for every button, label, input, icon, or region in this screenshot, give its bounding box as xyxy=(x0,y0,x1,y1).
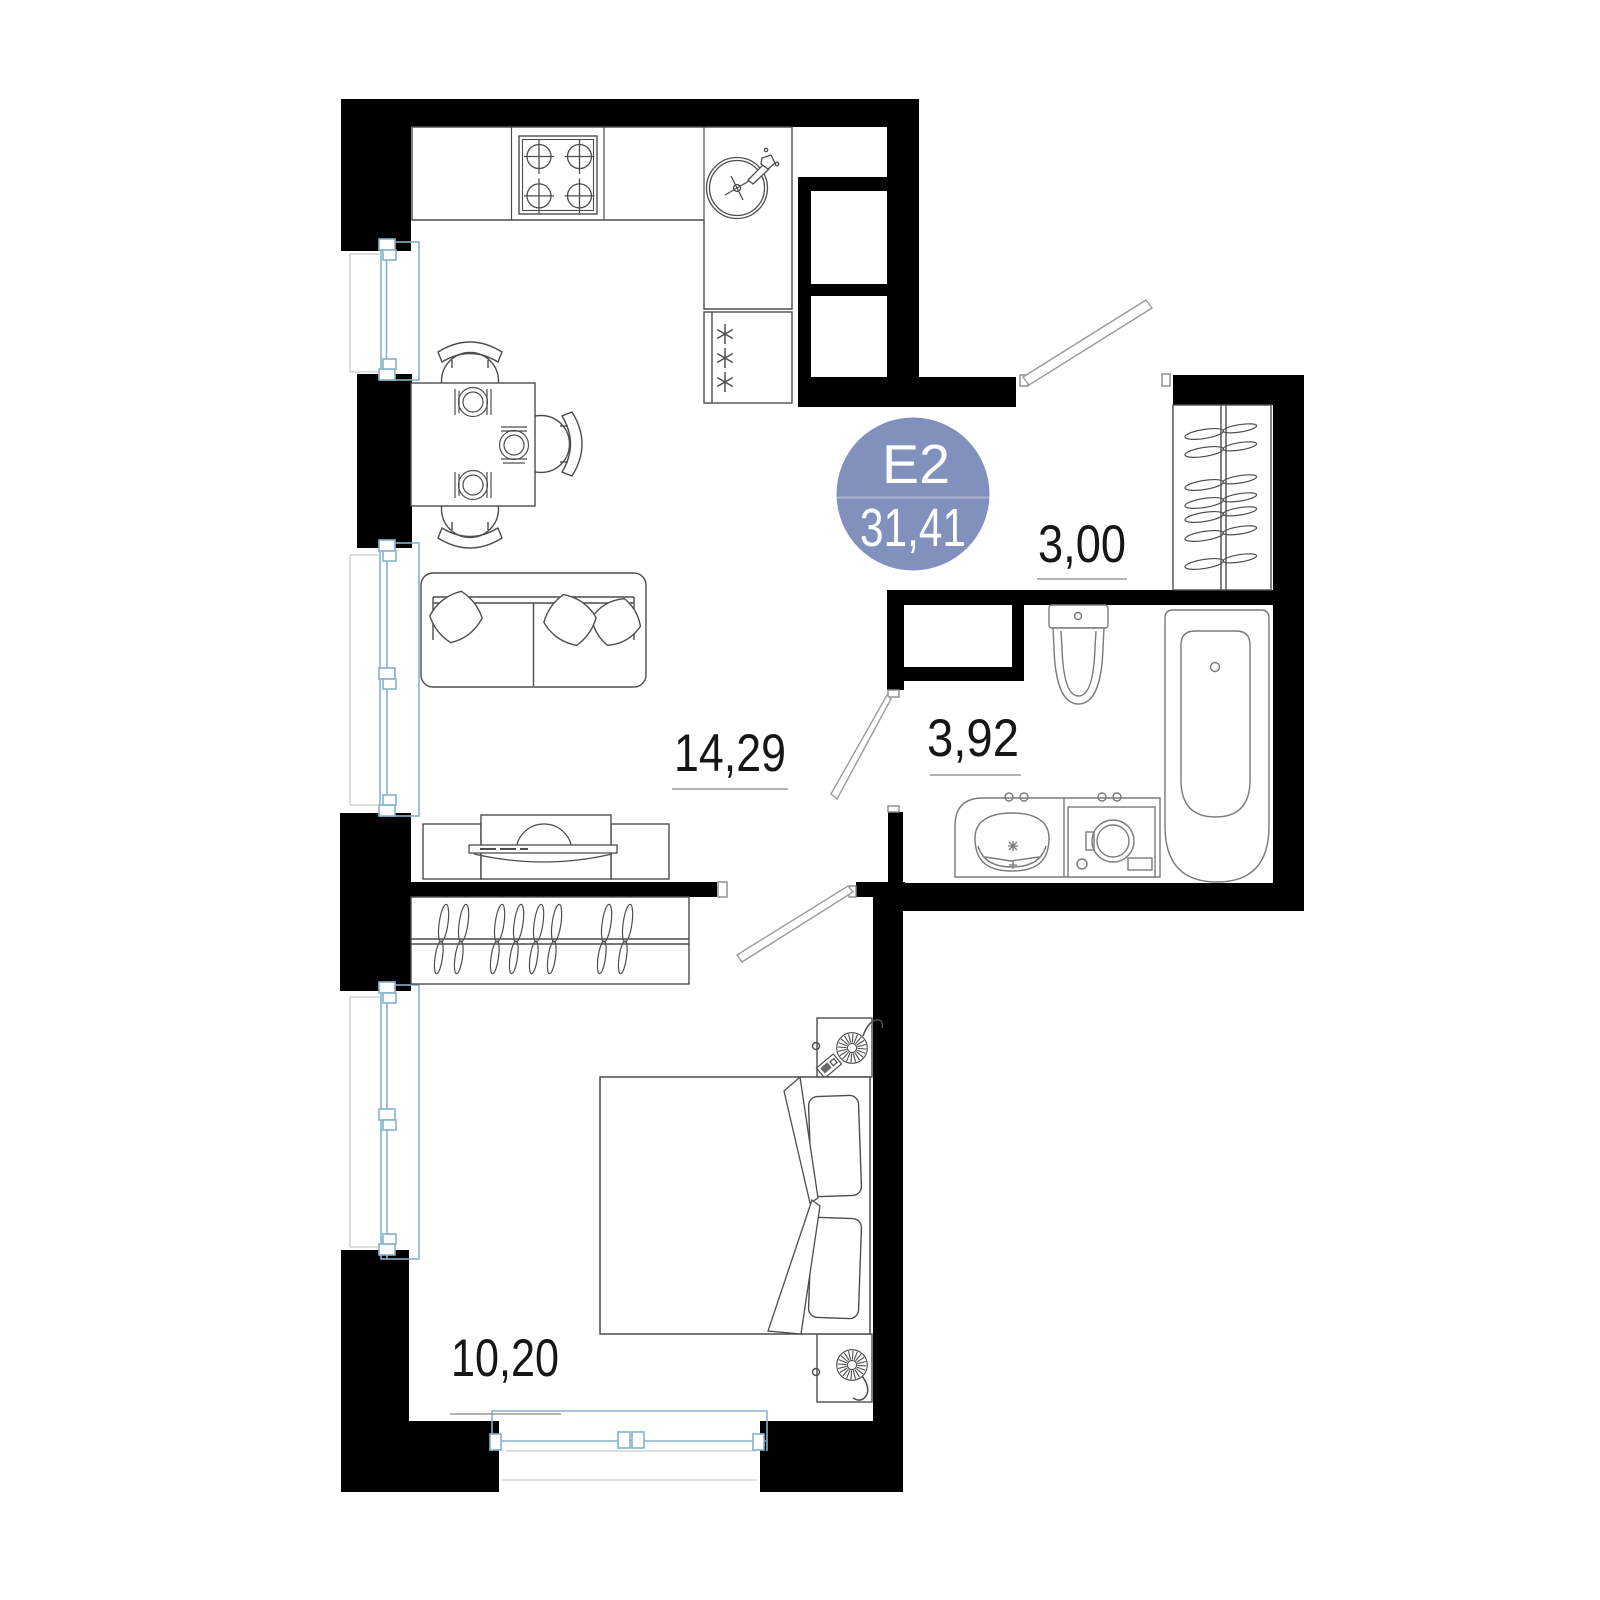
svg-text:31,41: 31,41 xyxy=(860,498,966,558)
svg-text:10,20: 10,20 xyxy=(451,1329,559,1388)
svg-text:3,00: 3,00 xyxy=(1038,515,1126,574)
svg-text:3,92: 3,92 xyxy=(927,709,1019,768)
svg-text:14,29: 14,29 xyxy=(674,724,786,783)
svg-text:E2: E2 xyxy=(882,433,950,495)
